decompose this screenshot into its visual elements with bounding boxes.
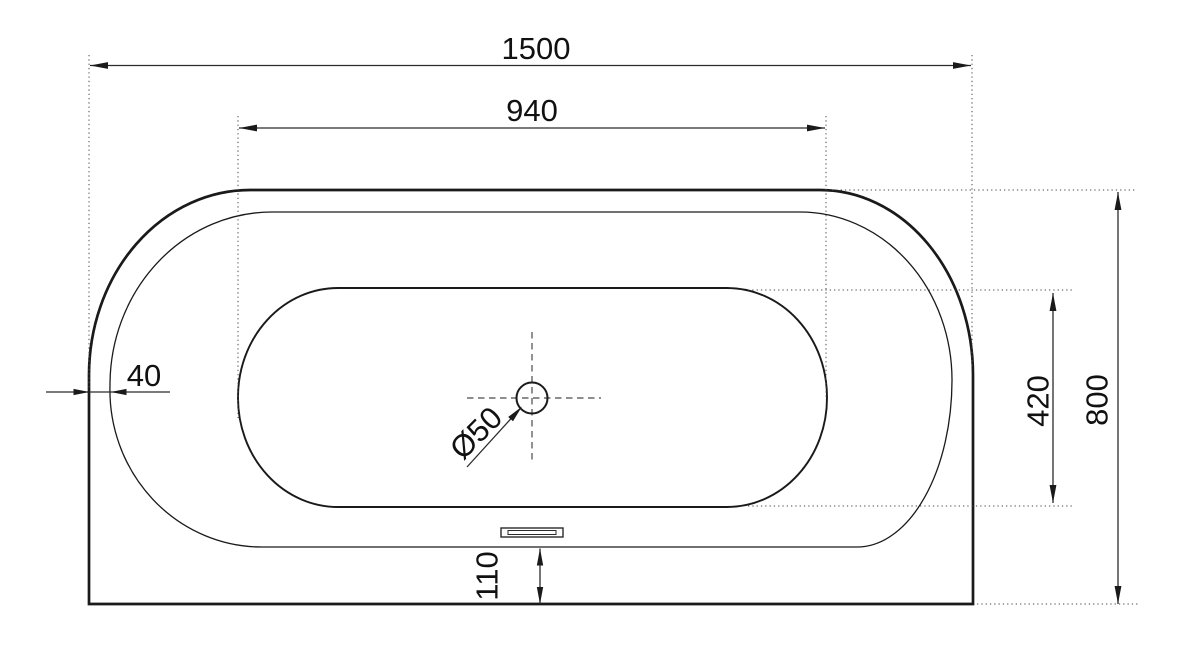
dim-front-edge-length: 940: [239, 93, 825, 131]
dim-overall-length-label: 1500: [502, 31, 571, 66]
dim-front-edge-arrow-right: [807, 125, 825, 132]
dim-overall-depth-label: 800: [1080, 374, 1115, 426]
overflow-slot-inner: [508, 531, 556, 535]
dim-drain-diameter: Ø50: [443, 400, 522, 467]
dim-basin-width-arrow-bottom: [1050, 485, 1057, 503]
dim-drain-diameter-label: Ø50: [443, 400, 509, 466]
dim-back-rim-arrow-top: [537, 549, 543, 566]
dim-overall-depth-arrow-top: [1115, 192, 1122, 210]
tub-basin-outline: [238, 288, 827, 507]
dim-basin-width-arrow-top: [1050, 293, 1057, 311]
extension-lines: [89, 55, 1140, 604]
dim-back-rim-arrow-bottom: [537, 587, 543, 604]
dim-overall-depth: 800: [1080, 192, 1122, 604]
dim-overall-length-arrow-left: [90, 62, 108, 69]
dim-back-rim-width: 110: [470, 549, 544, 605]
tub-body: [89, 190, 973, 604]
bathtub-technical-drawing: 1500 940 800 420 40 110 Ø50: [0, 0, 1200, 650]
overflow-slot: [501, 528, 563, 537]
dim-basin-width-label: 420: [1021, 375, 1056, 427]
dim-back-rim-label: 110: [470, 551, 505, 600]
dim-overall-length: 1500: [90, 31, 971, 69]
dim-overall-depth-arrow-bottom: [1115, 586, 1122, 604]
dim-front-rim-width: 40: [46, 358, 170, 395]
dim-front-rim-label: 40: [127, 358, 161, 393]
dim-front-edge-label: 940: [506, 93, 558, 128]
dim-overall-length-arrow-right: [953, 62, 971, 69]
dim-front-rim-arrow-right: [111, 389, 127, 395]
dim-basin-width: 420: [1021, 293, 1057, 503]
dim-front-rim-arrow-left: [74, 389, 90, 395]
dim-front-edge-arrow-left: [239, 125, 257, 132]
